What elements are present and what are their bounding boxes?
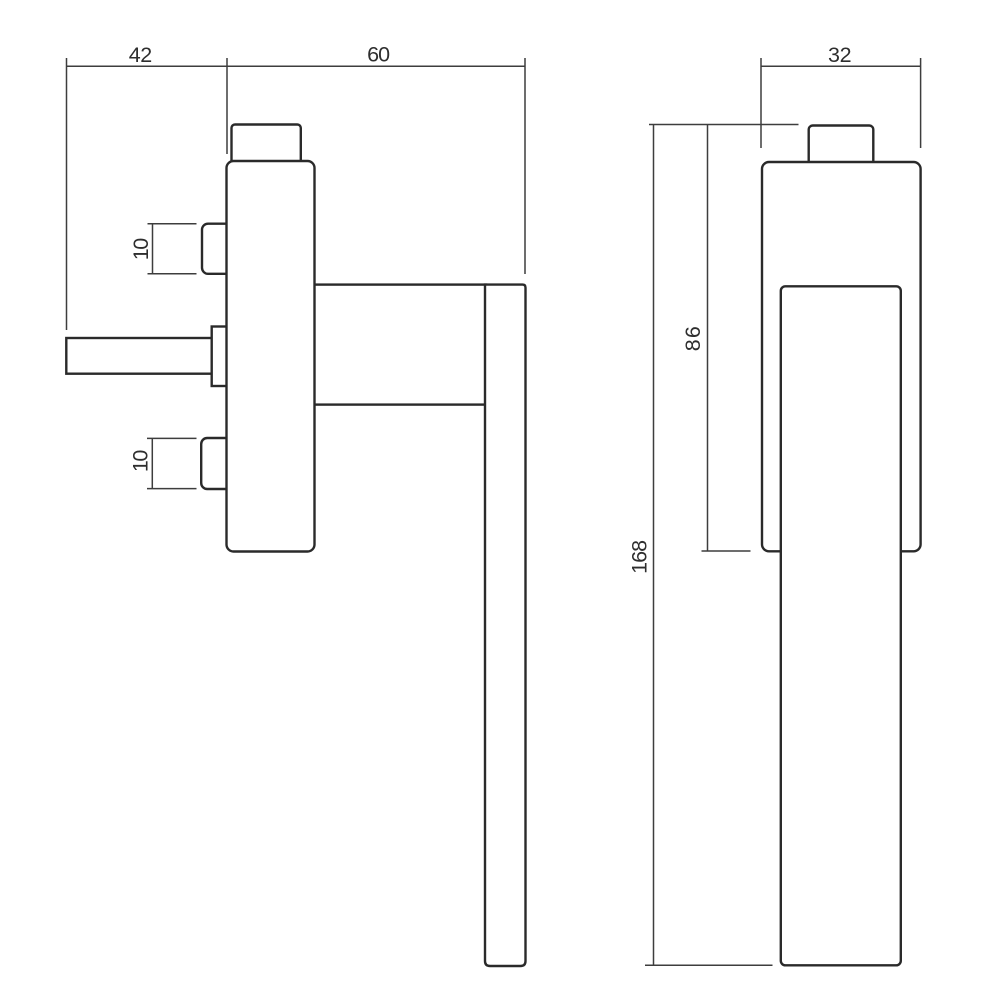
svg-text:10: 10	[129, 238, 153, 261]
svg-text:168: 168	[628, 540, 652, 574]
svg-text:32: 32	[828, 43, 852, 67]
svg-text:10: 10	[129, 450, 153, 473]
svg-text:60: 60	[367, 43, 390, 67]
svg-text:42: 42	[129, 43, 153, 67]
svg-text:86: 86	[681, 326, 705, 351]
